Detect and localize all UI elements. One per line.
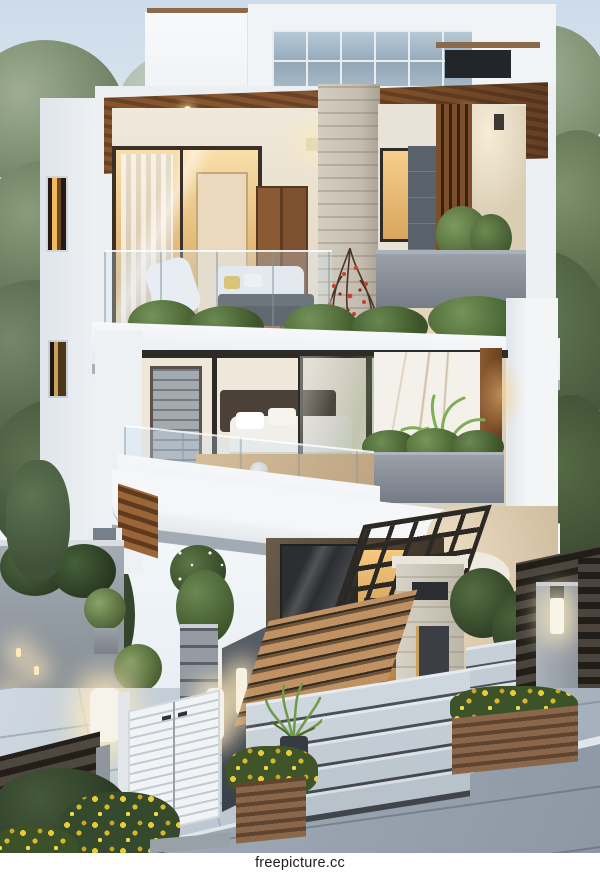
wood-side-stair (118, 484, 158, 559)
topiary-ball (114, 644, 162, 692)
slat-fence-far-right (578, 558, 600, 692)
pillar-lamp (550, 598, 564, 634)
watermark-text: freepicture.cc (255, 855, 345, 871)
pillar-lamp-fixture (550, 586, 564, 598)
gate-handle (178, 711, 187, 717)
pillow (236, 412, 264, 429)
clerestory-window-band (272, 30, 472, 92)
feathery-plant (6, 460, 70, 580)
watermark-bar: freepicture.cc (0, 853, 600, 873)
gate-handle (162, 715, 171, 721)
mailbox-slot (412, 582, 448, 600)
slit-window-upper (46, 176, 68, 252)
path-light (34, 666, 39, 675)
downlight-fixture (494, 114, 504, 130)
dark-glass-panel (445, 50, 511, 78)
pillow (268, 408, 296, 425)
topiary-pot (94, 628, 118, 654)
pillar-niche (416, 626, 449, 678)
wood-planter-box (236, 776, 306, 843)
slit-window-lower (48, 340, 68, 398)
balcony-planter (362, 452, 504, 503)
path-light (16, 648, 21, 657)
roof-trim-line (436, 42, 540, 48)
topiary-ball (84, 588, 126, 630)
architectural-render-scene: freepicture.cc (0, 0, 600, 873)
dark-tile-wall (408, 146, 436, 250)
